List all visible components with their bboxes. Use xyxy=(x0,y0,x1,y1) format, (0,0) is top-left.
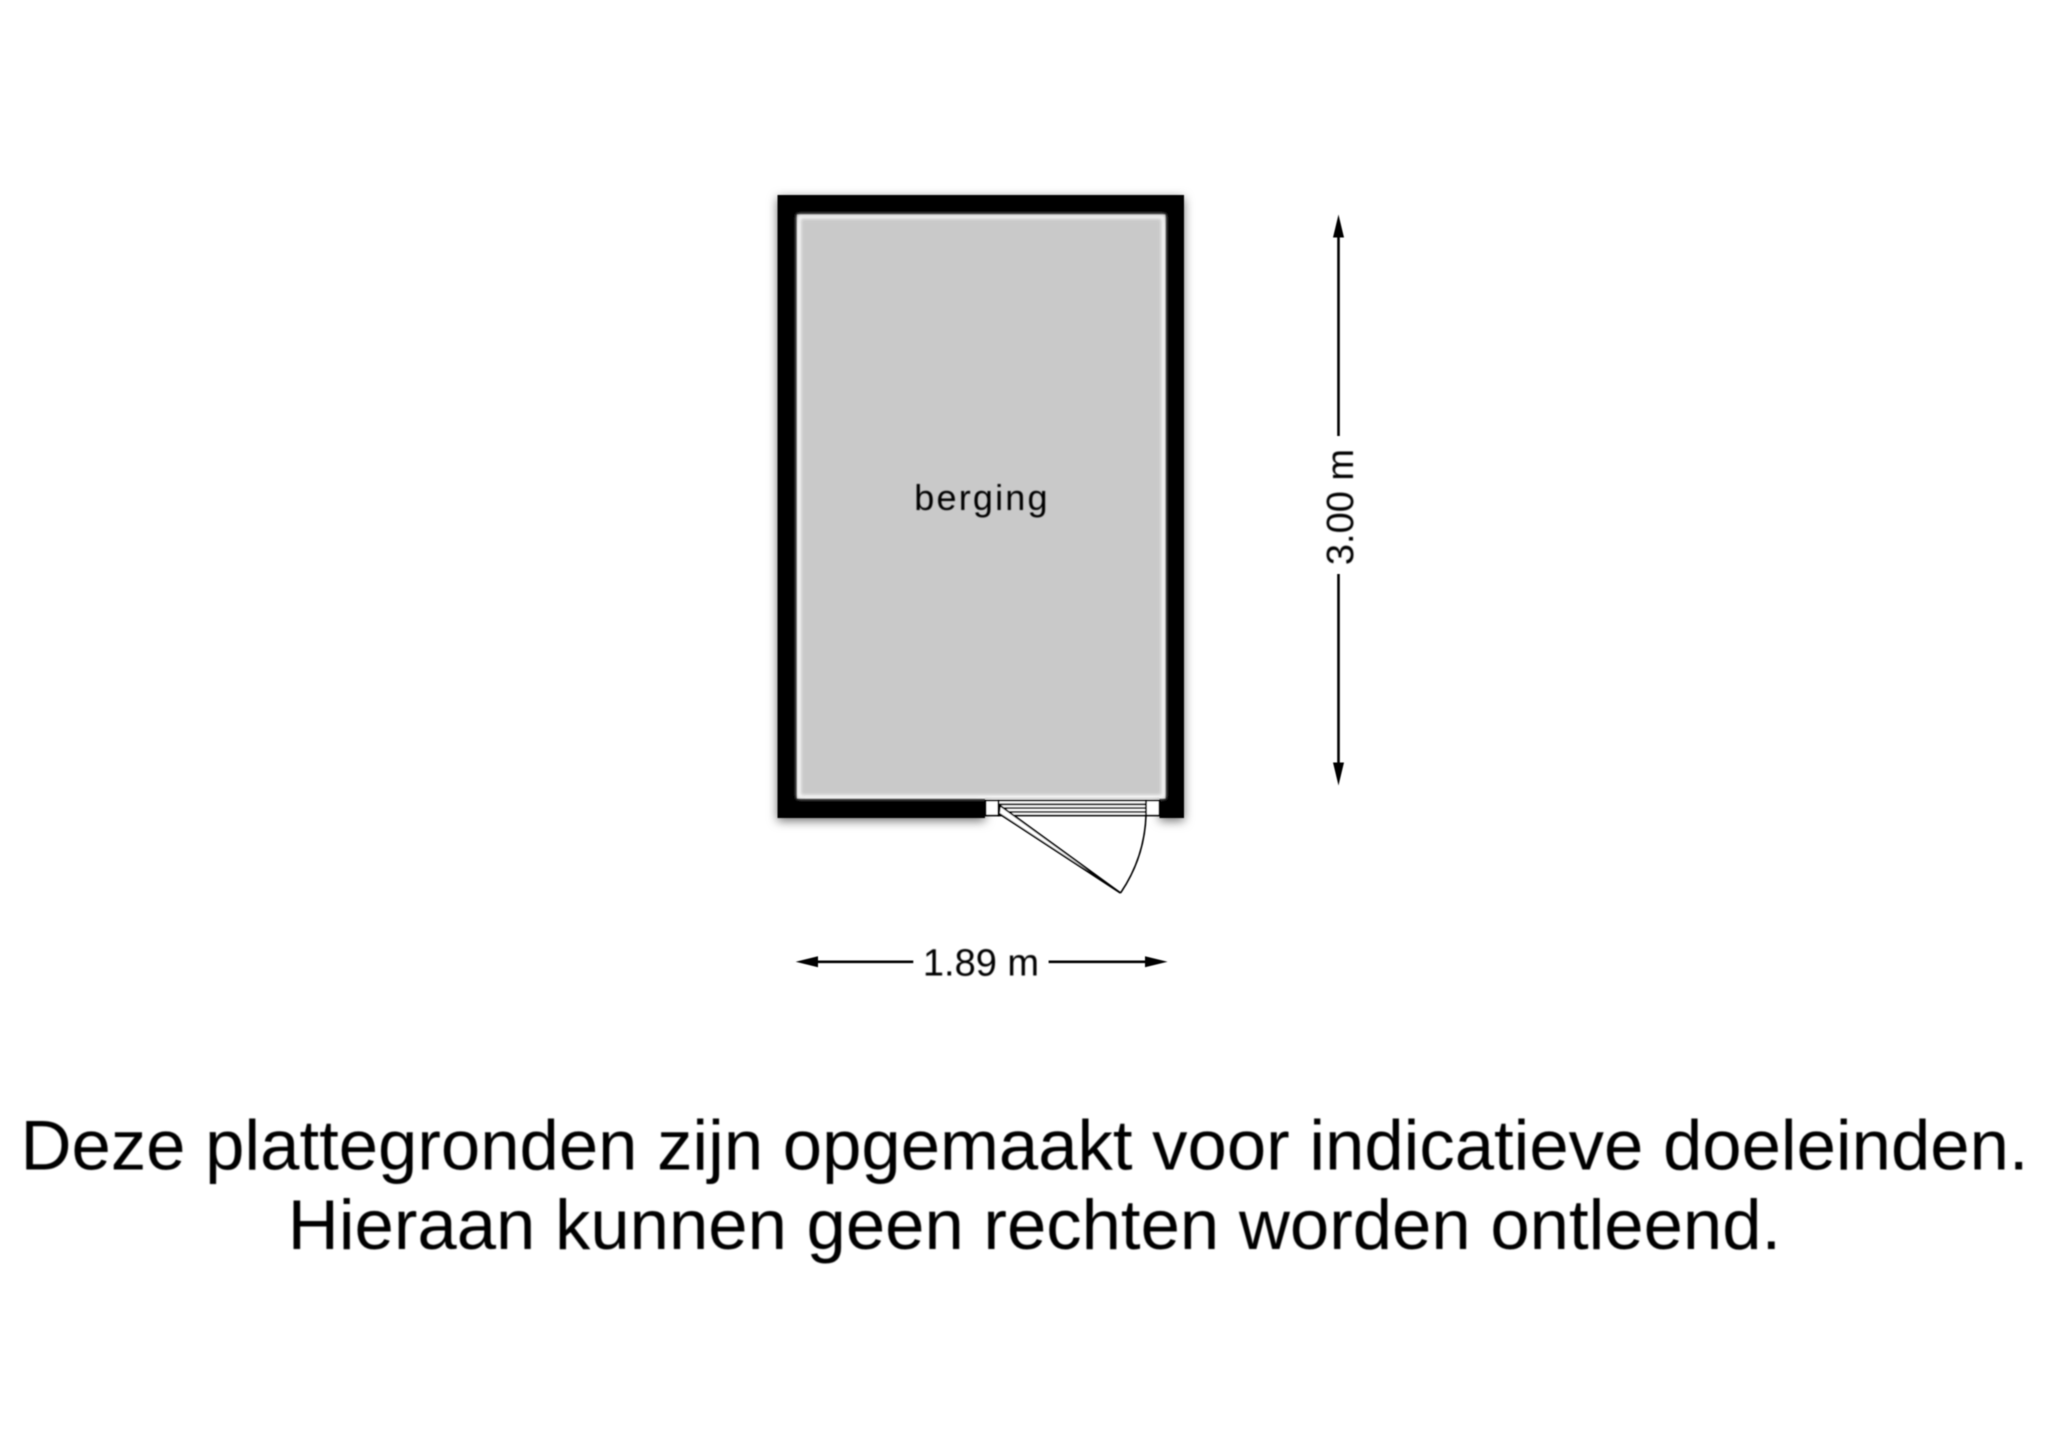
svg-text:3.00 m: 3.00 m xyxy=(1320,449,1362,565)
svg-text:Hieraan kunnen geen rechten wo: Hieraan kunnen geen rechten worden ontle… xyxy=(288,1185,1781,1264)
svg-text:1.89 m: 1.89 m xyxy=(923,943,1039,985)
svg-text:berging: berging xyxy=(914,477,1050,518)
svg-text:Deze plattegronden zijn opgema: Deze plattegronden zijn opgemaakt voor i… xyxy=(20,1106,2028,1185)
